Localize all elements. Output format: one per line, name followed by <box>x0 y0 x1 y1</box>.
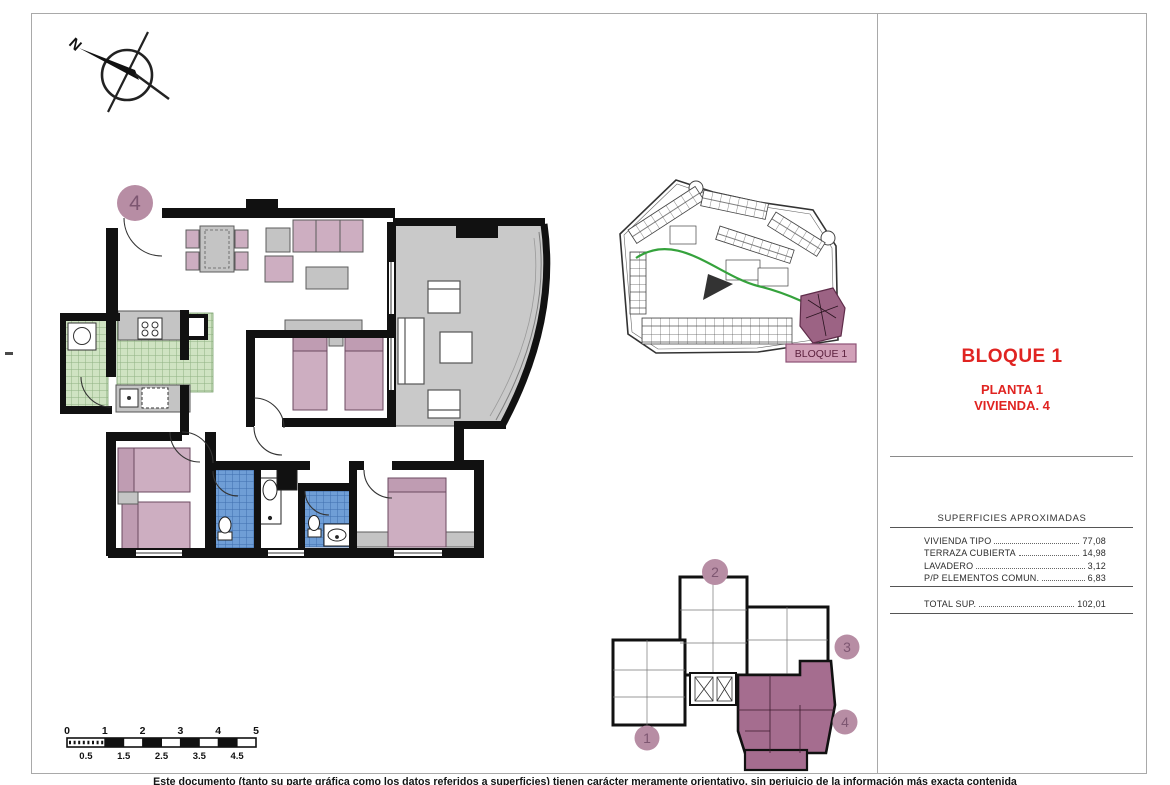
table-rule-top <box>890 527 1133 528</box>
surfaces-table-header: SUPERFICIES APROXIMADAS <box>877 513 1147 524</box>
bedroom1-furniture <box>356 478 478 547</box>
row-value: 3,12 <box>1088 561 1106 571</box>
table-rule-mid <box>890 586 1133 587</box>
scale-label: 1.5 <box>117 751 131 762</box>
unit-subtitle: VIVIENDA. 4 <box>877 398 1147 413</box>
key-plan: 1 2 3 4 <box>595 545 885 780</box>
disclaimer-text: Este documento (tanto su parte gráfica c… <box>0 776 1170 785</box>
unit-2-badge: 2 <box>711 564 719 580</box>
dot-leader <box>979 606 1074 607</box>
scale-label: 2.5 <box>155 751 169 762</box>
table-rule-bottom <box>890 613 1133 614</box>
table-row: VIVIENDA TIPO 77,08 <box>924 534 1106 546</box>
row-label: VIVIENDA TIPO <box>924 536 991 546</box>
scale-bar: 0 1 2 3 4 5 0.5 1.5 2.5 3.5 4.5 <box>60 724 270 766</box>
scale-top-labels: 0 1 2 3 4 5 <box>64 725 259 737</box>
block-title: BLOQUE 1 <box>877 346 1147 368</box>
row-value: 77,08 <box>1082 536 1106 546</box>
key-plan-core <box>690 673 736 705</box>
row-label: LAVADERO <box>924 561 973 571</box>
scale-label: 3 <box>177 725 183 737</box>
total-row: TOTAL SUP. 102,01 <box>924 595 1106 609</box>
plan-sheet: N <box>0 0 1170 785</box>
scale-label: 2 <box>140 725 146 737</box>
scale-label: 5 <box>253 725 259 737</box>
key-plan-unit4-highlight <box>738 661 835 753</box>
total-value: 102,01 <box>1077 599 1106 609</box>
surfaces-table: VIVIENDA TIPO 77,08 TERRAZA CUBIERTA 14,… <box>924 534 1106 583</box>
row-value: 14,98 <box>1082 548 1106 558</box>
scale-label: 4.5 <box>230 751 244 762</box>
scale-label: 0 <box>64 725 70 737</box>
table-row: TERRAZA CUBIERTA 14,98 <box>924 546 1106 558</box>
living-dining-furniture <box>186 220 363 289</box>
row-label: TERRAZA CUBIERTA <box>924 548 1016 558</box>
unit-1-badge: 1 <box>643 730 651 746</box>
scale-label: 0.5 <box>79 751 93 762</box>
north-compass-icon: N <box>55 22 175 117</box>
unit-3-badge: 3 <box>843 639 851 655</box>
unit-4-badge: 4 <box>841 714 849 730</box>
dot-leader <box>1042 580 1084 581</box>
dot-leader <box>976 568 1084 569</box>
dot-leader <box>994 543 1079 544</box>
row-value: 6,83 <box>1088 573 1106 583</box>
total-label: TOTAL SUP. <box>924 599 976 609</box>
site-block-label: BLOQUE 1 <box>795 348 848 360</box>
scale-label: 1 <box>102 725 108 737</box>
floor-subtitle: PLANTA 1 <box>877 382 1147 397</box>
row-label: P/P ELEMENTOS COMUN. <box>924 573 1039 583</box>
panel-divider <box>890 456 1133 457</box>
margin-tick <box>5 352 13 355</box>
scale-label: 3.5 <box>193 751 207 762</box>
table-row: P/P ELEMENTOS COMUN. 6,83 <box>924 571 1106 583</box>
apartment-floor-plan: 4 <box>50 180 570 580</box>
scale-label: 4 <box>215 725 221 737</box>
dot-leader <box>1019 555 1080 556</box>
scale-bottom-labels: 0.5 1.5 2.5 3.5 4.5 <box>79 751 244 762</box>
table-row: LAVADERO 3,12 <box>924 558 1106 570</box>
bedroom3-furniture <box>118 448 190 552</box>
north-label: N <box>65 35 84 55</box>
unit-badge-number: 4 <box>129 192 141 215</box>
site-plan: BLOQUE 1 <box>608 168 868 373</box>
